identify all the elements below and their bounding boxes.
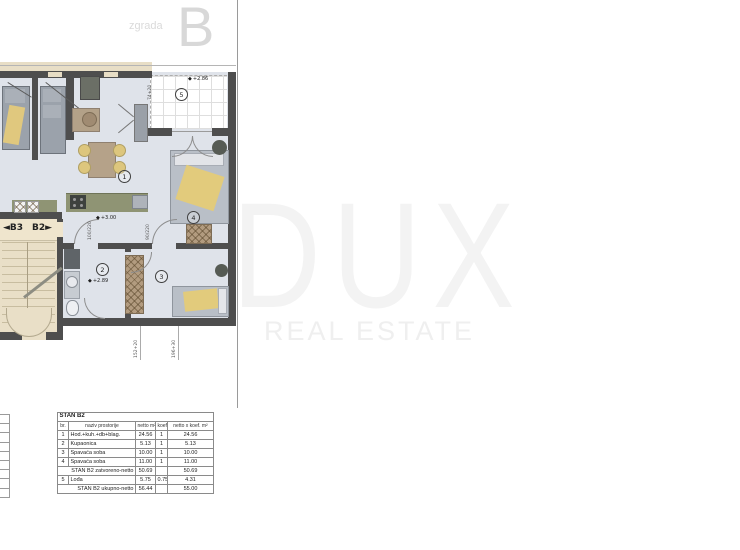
cell-total: 5.13 [168, 440, 214, 449]
cell-koef: 1 [156, 431, 168, 440]
wall-segment [62, 318, 236, 326]
tv-unit [134, 104, 148, 142]
table-header-row: br. naziv prostorije netto m² koef netto… [58, 422, 214, 431]
level-marker: ◆+3.00 [96, 215, 116, 221]
table-row [0, 451, 10, 460]
bed-pillow [218, 288, 227, 314]
bath-washer [64, 249, 80, 269]
toilet [66, 300, 79, 316]
stair-door-gap [57, 222, 63, 237]
stair-label-b2: B2► [32, 223, 52, 233]
table-row [0, 415, 10, 424]
room-number-label: 2 [100, 266, 104, 274]
level-marker: ◆+2.89 [88, 278, 108, 284]
room-number-label: 5 [179, 91, 183, 99]
dimension-line [140, 326, 141, 360]
cell-br: 2 [58, 440, 69, 449]
stair-label-b3: ◄B3 [3, 223, 23, 233]
area-table: STAN B2 br. naziv prostorije netto m² ko… [57, 412, 214, 494]
subtotal-total: 50.69 [168, 467, 214, 476]
cell-br: 3 [58, 449, 69, 458]
cell-netto: 24.56 [136, 431, 156, 440]
bottom-dimension: 196+30 [172, 340, 177, 358]
kitchen-sink [132, 195, 148, 209]
cell-name: Spavaća soba [69, 458, 136, 467]
level-value: +2.86 [193, 76, 208, 82]
col-header-netto: netto m² [136, 422, 156, 431]
cell-koef: 1 [156, 458, 168, 467]
door-threshold [172, 131, 212, 132]
sink [66, 276, 78, 288]
watermark-subtitle: REAL ESTATE [264, 316, 475, 347]
table-row [0, 442, 10, 451]
bed-pillow [174, 153, 224, 166]
table-row: 3 Spavaća soba 10.00 1 10.00 [58, 449, 214, 458]
top-strip [0, 62, 152, 71]
top-strip-line [0, 65, 236, 66]
floorplan: ◄B3 B2► ◆+3.00 100/220 90/220 2 ◆+2.89 [0, 60, 238, 360]
cell-br: 1 [58, 431, 69, 440]
floorplan-page: { "header": { "building_label": "zgrada"… [0, 0, 740, 550]
building-label: zgrada [129, 20, 163, 32]
table-row [0, 488, 10, 497]
total-netto: 56.44 [136, 485, 156, 494]
loggia-floor [150, 75, 227, 129]
bed-blanket [183, 288, 219, 311]
room-number-1: 1 [118, 170, 131, 183]
level-value: +3.00 [101, 215, 116, 221]
table-total-row: STAN B2 ukupno-netto 56.44 55.00 [58, 485, 214, 494]
cell-name: Hod.+kuh.+db+blag. [69, 431, 136, 440]
plant [212, 140, 227, 155]
dimension-line [178, 326, 179, 360]
cell-total: 4.31 [168, 476, 214, 485]
desk-chair [82, 112, 97, 127]
cell-name: Lođa [69, 476, 136, 485]
total-koef-empty [156, 485, 168, 494]
col-header-br: br. [58, 422, 69, 431]
dining-chair [78, 144, 91, 157]
wall-segment [146, 128, 172, 136]
cabinet [80, 76, 100, 100]
washer [14, 201, 26, 213]
table-title-row: STAN B2 [58, 413, 214, 422]
wall-segment [0, 71, 152, 78]
watermark-logo: DUX [232, 180, 526, 330]
table-row [0, 424, 10, 433]
table-subtotal-row: STAN B2 zatvoreno-netto 50.69 50.69 [58, 467, 214, 476]
room-number-label: 4 [191, 214, 195, 222]
window [104, 72, 118, 77]
bottom-dimension: 152+20 [134, 340, 139, 358]
wall-segment [125, 243, 131, 252]
cell-total: 10.00 [168, 449, 214, 458]
subtotal-koef-empty [156, 467, 168, 476]
room-number-label: 1 [122, 173, 126, 181]
table-row [0, 460, 10, 469]
table-row [0, 433, 10, 442]
room-number-label: 3 [159, 273, 163, 281]
wardrobe [186, 224, 212, 244]
cropped-side-table [0, 414, 10, 498]
wall-segment [32, 78, 38, 160]
wall-segment [131, 243, 152, 249]
cell-koef: 1 [156, 440, 168, 449]
dining-chair [78, 161, 91, 174]
col-header-koef: koef [156, 422, 168, 431]
cell-koef: 0.75 [156, 476, 168, 485]
cell-netto: 11.00 [136, 458, 156, 467]
table-row: 1 Hod.+kuh.+db+blag. 24.56 1 24.56 [58, 431, 214, 440]
window [48, 72, 62, 77]
total-total: 55.00 [168, 485, 214, 494]
door-dimension: 100/220 [88, 221, 93, 240]
level-marker-icon: ◆ [88, 278, 92, 284]
door-dimension: 90/220 [146, 224, 151, 240]
room-number-2: 2 [96, 263, 109, 276]
subtotal-netto: 50.69 [136, 467, 156, 476]
level-marker-icon: ◆ [188, 76, 192, 82]
stove [70, 195, 86, 209]
sofa-cushion [43, 105, 61, 118]
col-header-total: netto x koef. m² [168, 422, 214, 431]
nightstand [215, 264, 228, 277]
cell-netto: 10.00 [136, 449, 156, 458]
cell-netto: 5.75 [136, 476, 156, 485]
room-number-5: 5 [175, 88, 188, 101]
table-row: 4 Spavaća soba 11.00 1 11.00 [58, 458, 214, 467]
level-value: +2.89 [93, 278, 108, 284]
cell-br: 4 [58, 458, 69, 467]
table-row [0, 470, 10, 479]
room-number-4: 4 [187, 211, 200, 224]
cell-name: Spavaća soba [69, 449, 136, 458]
table-row [0, 479, 10, 488]
washer [27, 201, 39, 213]
table-row: 5 Lođa 5.75 0.75 4.31 [58, 476, 214, 485]
wall-segment [57, 219, 63, 340]
cell-total: 24.56 [168, 431, 214, 440]
room-number-3: 3 [155, 270, 168, 283]
cell-total: 11.00 [168, 458, 214, 467]
table-title: STAN B2 [58, 413, 214, 422]
building-letter: B [177, 0, 214, 59]
stove-burner [73, 198, 76, 201]
cell-name: Kupaonica [69, 440, 136, 449]
dining-table [88, 142, 116, 178]
wall-segment [212, 128, 236, 136]
cell-koef: 1 [156, 449, 168, 458]
cell-netto: 5.13 [136, 440, 156, 449]
table-row: 2 Kupaonica 5.13 1 5.13 [58, 440, 214, 449]
wall-segment [0, 212, 62, 219]
total-label: STAN B2 ukupno-netto [58, 485, 136, 494]
level-marker: ◆+2.86 [188, 76, 208, 82]
loggia-dimension: 74+20 [148, 85, 153, 100]
subtotal-label: STAN B2 zatvoreno-netto [58, 467, 136, 476]
cell-br: 5 [58, 476, 69, 485]
level-marker-icon: ◆ [96, 215, 100, 221]
dining-chair [113, 144, 126, 157]
col-header-name: naziv prostorije [69, 422, 136, 431]
